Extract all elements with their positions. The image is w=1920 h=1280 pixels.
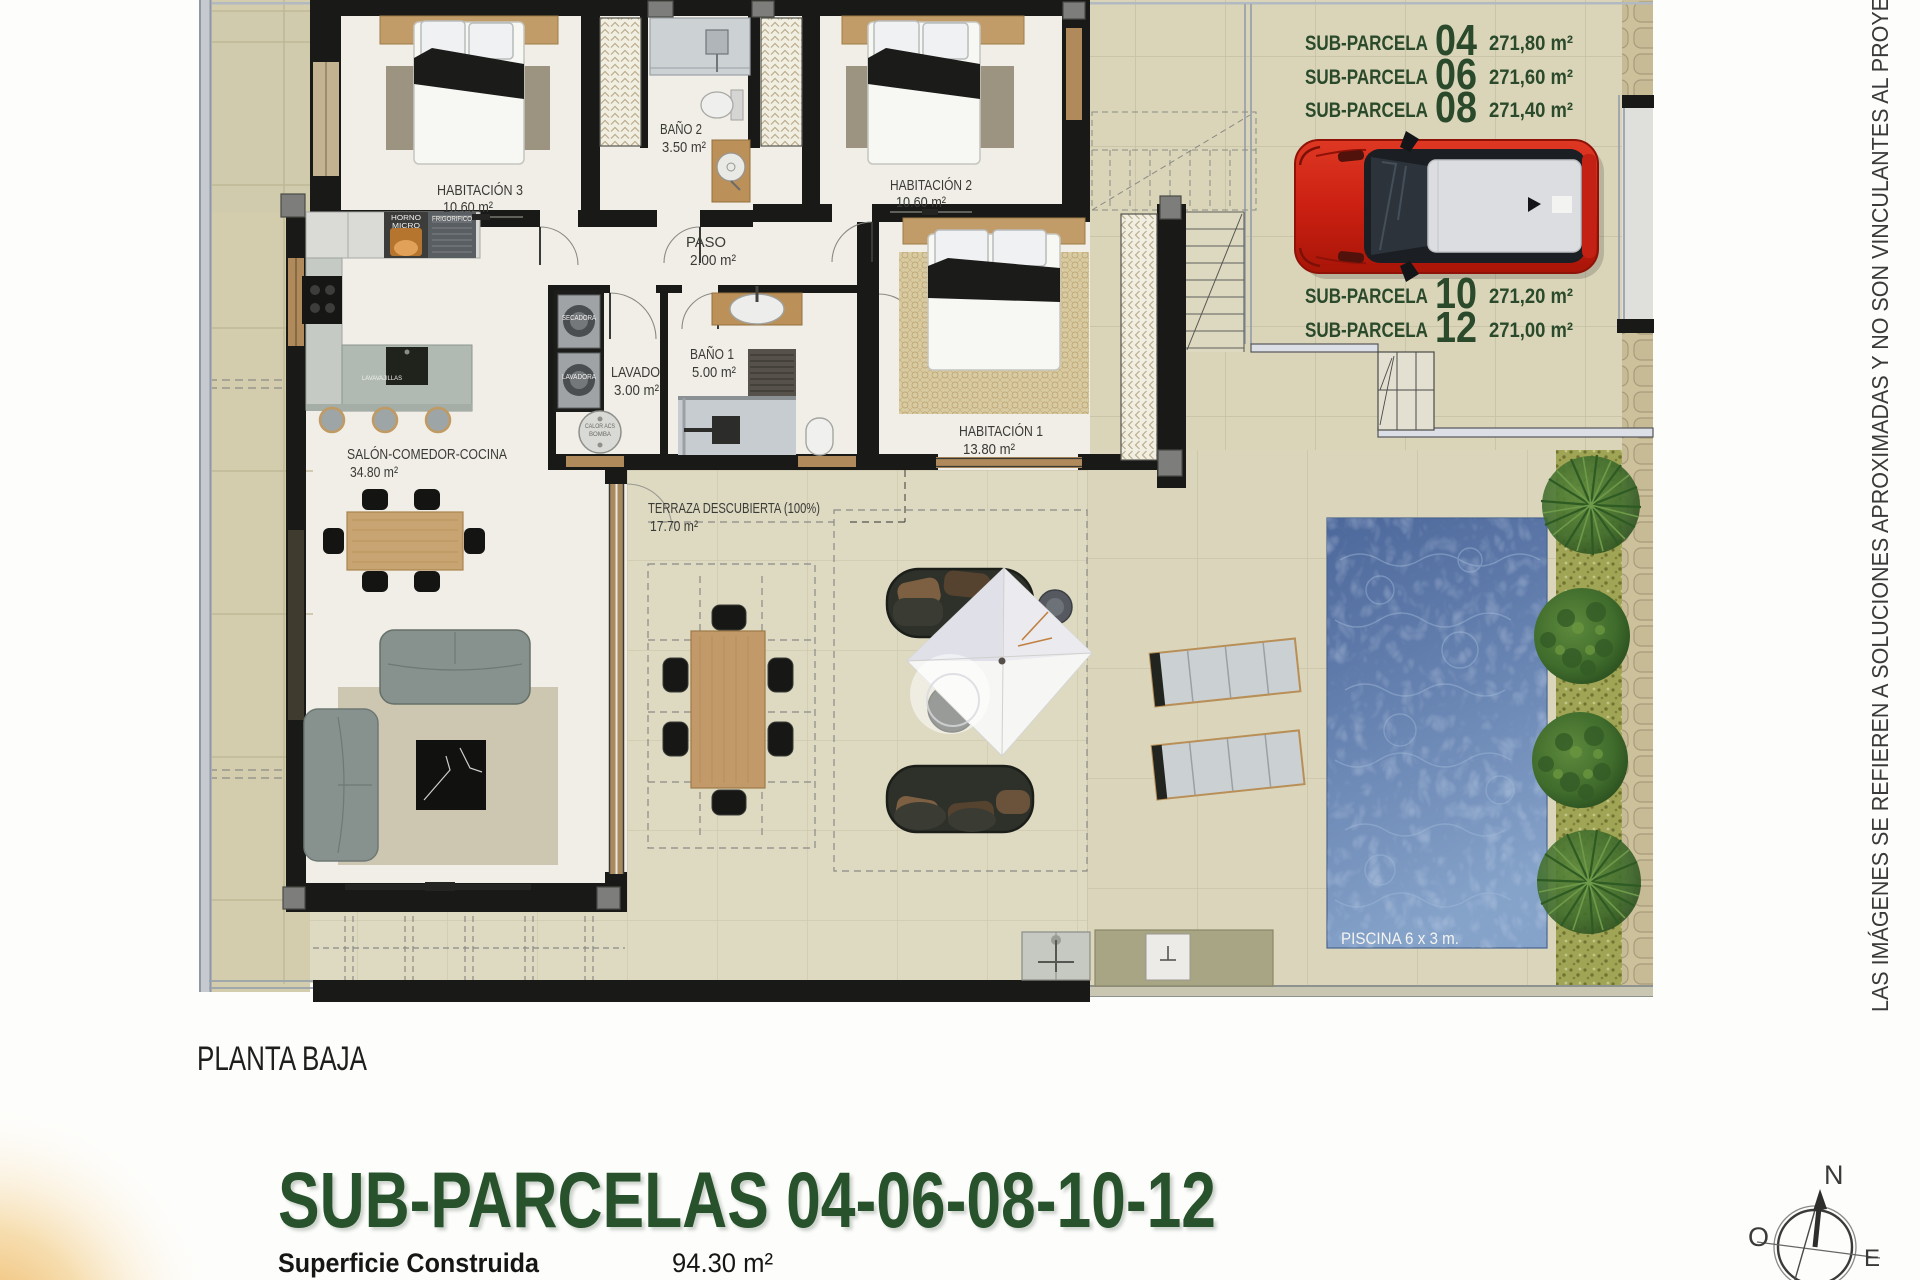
svg-text:SUB-PARCELA: SUB-PARCELA <box>1305 32 1428 55</box>
svg-text:SUB-PARCELA: SUB-PARCELA <box>1305 319 1428 342</box>
svg-text:CALOR ACS: CALOR ACS <box>585 423 615 430</box>
svg-text:Superficie Construida: Superficie Construida <box>278 1248 540 1278</box>
svg-text:O: O <box>1748 1222 1769 1252</box>
svg-text:E: E <box>1864 1245 1880 1272</box>
svg-text:SUB-PARCELA: SUB-PARCELA <box>1305 285 1428 308</box>
svg-text:HABITACIÓN 3: HABITACIÓN 3 <box>437 182 523 199</box>
svg-text:FRIGORIFICO: FRIGORIFICO <box>432 216 472 223</box>
svg-text:PASO: PASO <box>686 234 726 251</box>
svg-text:LAS IMÁGENES SE REFIEREN A SOL: LAS IMÁGENES SE REFIEREN A SOLUCIONES AP… <box>1867 0 1893 1012</box>
svg-text:SUB-PARCELA: SUB-PARCELA <box>1305 66 1428 89</box>
svg-text:TERRAZA DESCUBIERTA (100%): TERRAZA DESCUBIERTA (100%) <box>648 500 820 517</box>
svg-text:SUB-PARCELAS 04-06-08-10-12: SUB-PARCELAS 04-06-08-10-12 <box>278 1155 1216 1244</box>
svg-text:34.80 m²: 34.80 m² <box>350 464 398 481</box>
svg-text:13.80 m²: 13.80 m² <box>963 441 1015 458</box>
svg-text:HABITACIÓN 1: HABITACIÓN 1 <box>959 423 1043 440</box>
svg-text:SUB-PARCELA: SUB-PARCELA <box>1305 99 1428 122</box>
svg-text:PISCINA 6 x 3 m.: PISCINA 6 x 3 m. <box>1341 929 1459 948</box>
svg-text:17.70 m²: 17.70 m² <box>650 518 698 535</box>
svg-text:12: 12 <box>1435 303 1477 352</box>
svg-text:94.30 m²: 94.30 m² <box>672 1248 773 1278</box>
svg-text:271,40 m²: 271,40 m² <box>1489 99 1573 122</box>
svg-text:271,80 m²: 271,80 m² <box>1489 32 1573 55</box>
svg-text:3.50 m²: 3.50 m² <box>662 139 706 156</box>
svg-text:271,20 m²: 271,20 m² <box>1489 285 1573 308</box>
svg-text:10.60 m²: 10.60 m² <box>896 194 946 211</box>
svg-text:3.00 m²: 3.00 m² <box>614 382 659 399</box>
svg-text:5.00 m²: 5.00 m² <box>692 364 736 381</box>
svg-text:SECADORA: SECADORA <box>562 313 596 322</box>
svg-text:08: 08 <box>1435 83 1477 132</box>
svg-text:LAVAVAJILLAS: LAVAVAJILLAS <box>362 375 403 382</box>
svg-text:BAÑO 1: BAÑO 1 <box>690 346 734 363</box>
svg-text:SALÓN-COMEDOR-COCINA: SALÓN-COMEDOR-COCINA <box>347 446 507 463</box>
svg-text:2.00 m²: 2.00 m² <box>690 252 736 269</box>
svg-text:HABITACIÓN 2: HABITACIÓN 2 <box>890 177 972 194</box>
svg-text:271,60 m²: 271,60 m² <box>1489 66 1573 89</box>
svg-text:N: N <box>1824 1160 1844 1190</box>
svg-text:LAVADORA: LAVADORA <box>562 372 596 381</box>
svg-text:MICRO: MICRO <box>392 221 420 230</box>
svg-text:BOMBA: BOMBA <box>589 431 611 438</box>
svg-text:LAVADO: LAVADO <box>611 364 660 381</box>
svg-text:271,00 m²: 271,00 m² <box>1489 319 1573 342</box>
svg-text:10.60 m²: 10.60 m² <box>443 199 493 216</box>
svg-text:BAÑO 2: BAÑO 2 <box>660 121 702 138</box>
